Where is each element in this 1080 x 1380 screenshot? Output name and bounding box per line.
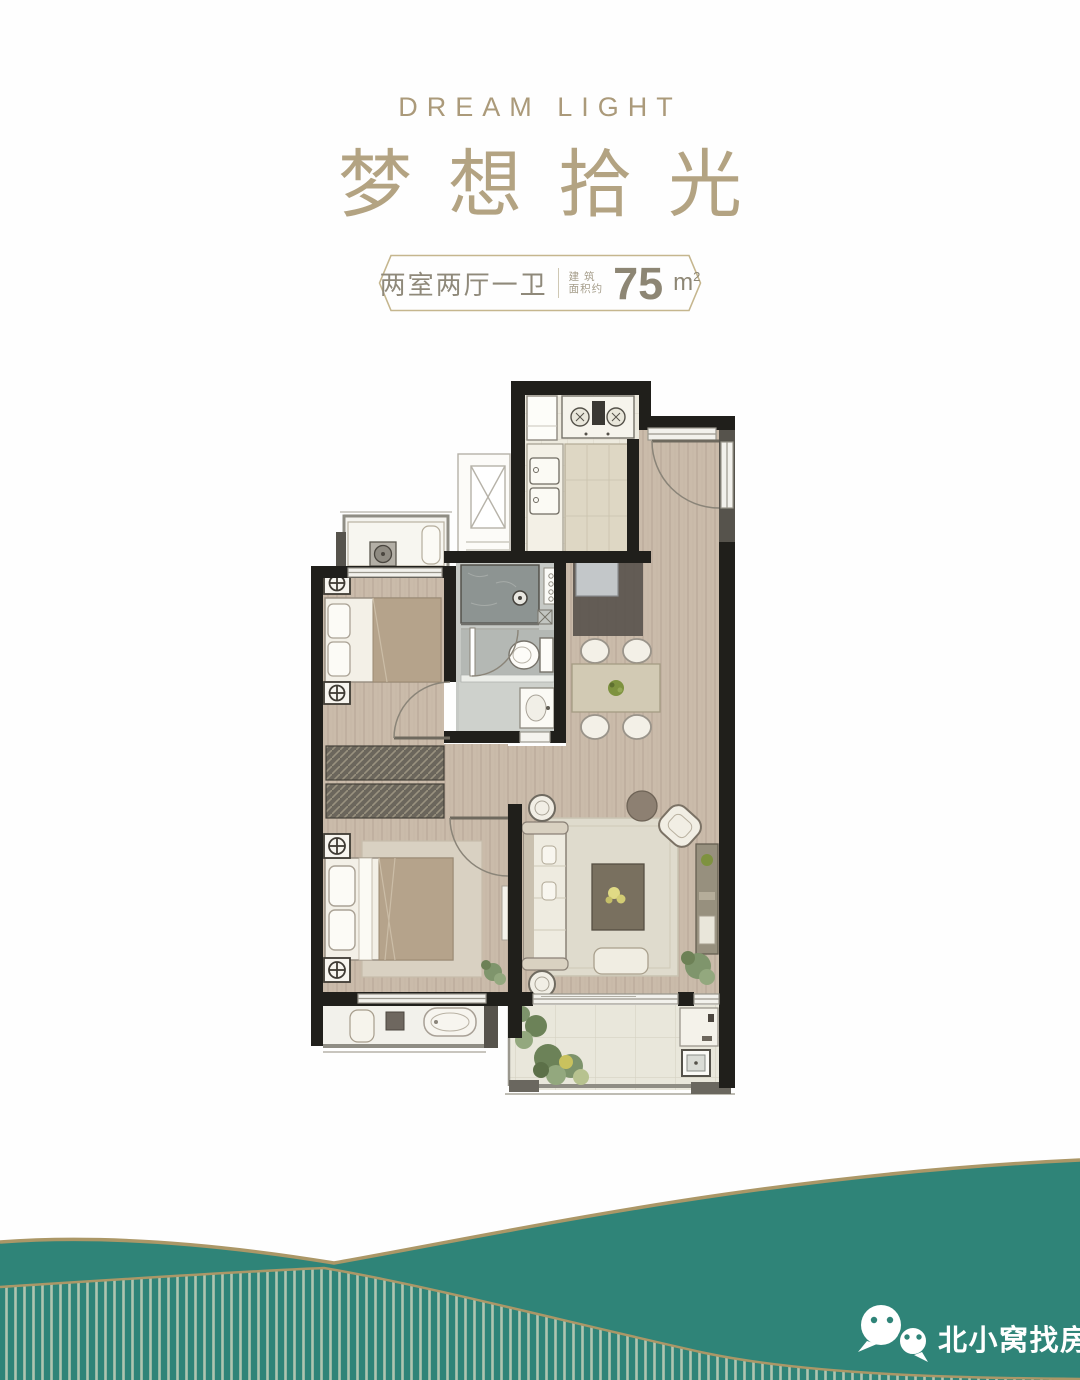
ottoman — [594, 948, 648, 974]
table-plant-icon — [608, 680, 624, 696]
area-label: 建 筑 面积约 — [569, 271, 604, 295]
corridor-floor — [508, 746, 522, 804]
shower — [461, 565, 539, 623]
brand-name: 北小窝找房 — [938, 1323, 1080, 1357]
page-title: 梦想拾光 — [0, 142, 1080, 227]
mop-sink — [682, 1050, 710, 1076]
entry-threshold — [648, 428, 716, 440]
master-bed — [325, 858, 453, 960]
entry-window — [721, 442, 733, 508]
layout-label: 两室两厅一卫 — [380, 265, 548, 302]
footer-waves: 北小窝找房 — [0, 1078, 1080, 1380]
bathtub — [424, 1008, 476, 1036]
wardrobe — [326, 746, 444, 780]
fridge — [527, 396, 557, 440]
floorplan — [308, 378, 752, 1108]
elevator-shaft — [458, 454, 512, 568]
bath-threshold — [520, 732, 550, 742]
bedroom2-slider — [348, 568, 442, 577]
balcony-window — [694, 994, 719, 1004]
master-slider — [358, 994, 486, 1003]
area-value: 75 — [613, 261, 663, 306]
poster: DREAM LIGHT 梦想拾光 两室两厅一卫 建 筑 面积约 75 m2 — [0, 0, 1080, 1380]
spec-badge: 两室两厅一卫 建 筑 面积约 75 m2 — [378, 254, 702, 312]
bathroom-sink — [520, 688, 554, 728]
pouf — [627, 791, 657, 821]
living-slider — [533, 994, 678, 1004]
side-stand — [386, 1012, 404, 1030]
wardrobe — [326, 784, 444, 818]
kitchen-island — [565, 444, 633, 552]
lounge-chair — [350, 1010, 374, 1042]
badge-divider — [558, 268, 559, 298]
tv-console — [696, 844, 718, 954]
brand-subtitle-en: DREAM LIGHT — [0, 92, 1080, 123]
stove — [562, 396, 634, 438]
second-bed — [325, 598, 441, 682]
sofa — [522, 822, 568, 970]
master-tv — [502, 886, 508, 940]
cushion — [422, 526, 440, 564]
laundry-cabinet — [680, 1008, 718, 1046]
area-unit: m2 — [673, 269, 700, 297]
title-text: 梦想拾光 — [338, 143, 778, 226]
